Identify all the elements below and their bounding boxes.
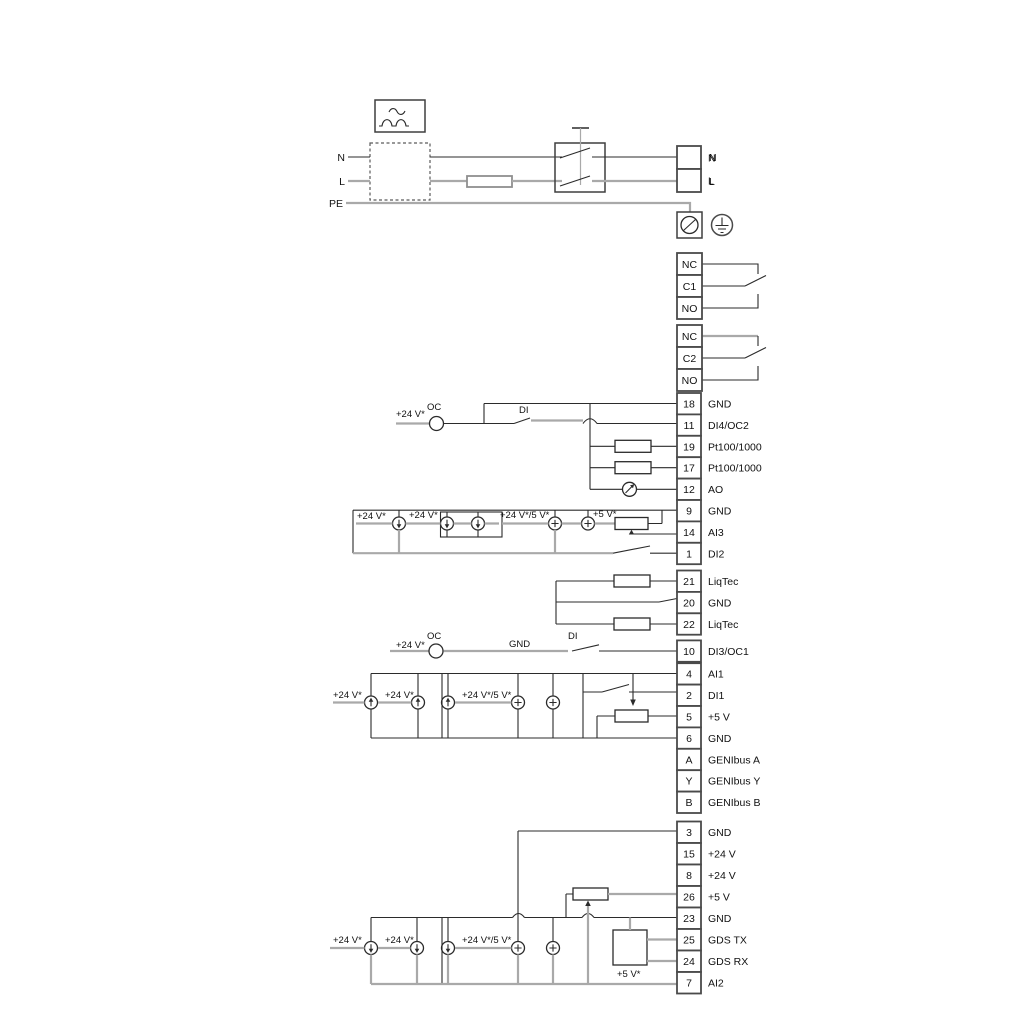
v24or5-label-ai3: +24 V*/5 V* [500, 510, 550, 521]
di-label-di4: DI [519, 405, 529, 416]
ai2-gds-circuit: +24 V* +24 V* +24 V*/5 V* +5 V* [330, 831, 677, 984]
ac-wave-icon [379, 109, 409, 126]
terminal-number: Y [685, 776, 692, 788]
terminal-label: AI1 [708, 669, 724, 681]
current-source-down-icon [393, 517, 406, 530]
terminal-label: +24 V [708, 849, 736, 861]
pe-terminal [677, 212, 702, 238]
v24-label-ai3-1: +24 V* [357, 511, 386, 522]
terminal-label: AO [708, 484, 723, 496]
v24or5-label-ai2: +24 V*/5 V* [462, 935, 512, 946]
current-source-up-icon [442, 696, 455, 709]
main-switch [555, 128, 605, 192]
relay2-wiring [702, 336, 766, 380]
current-source-down-icon [442, 942, 455, 955]
terminal-label: GND [708, 913, 732, 925]
terminal-block-bottom: 3GND15+24 V8+24 V26+5 V23GND25GDS TX24GD… [677, 822, 748, 994]
terminal-number: C1 [683, 281, 697, 293]
v24-label-ai2-2: +24 V* [385, 935, 414, 946]
voltage-source-icon [547, 696, 560, 709]
terminal-number: 23 [683, 913, 695, 925]
v24or5-label-ai1: +24 V*/5 V* [462, 690, 512, 701]
pot-wiper-arrow [630, 700, 636, 707]
terminal-block-io-b: 4AI12DI15+5 V6GNDAGENIbus AYGENIbus YBGE… [677, 663, 761, 813]
pt100-resistor-2 [615, 462, 651, 474]
di4-oc2-circuit: +24 V* OC DI [396, 402, 677, 496]
terminal-label: GENIbus B [708, 797, 761, 809]
terminal-number: 26 [683, 892, 695, 904]
ac-supply-box [375, 100, 425, 132]
current-source-down-icon [472, 517, 485, 530]
v5-label-ai3: +5 V* [593, 509, 617, 520]
di2-switch-blade [613, 546, 650, 553]
terminal-number: 9 [686, 506, 692, 518]
analog-output-meter-icon [623, 482, 637, 496]
oc-label-di4: OC [427, 402, 441, 413]
terminal-label: GENIbus Y [708, 776, 760, 788]
filter-box [370, 143, 430, 200]
terminal-label: GENIbus A [708, 754, 760, 766]
terminal-label: +24 V [708, 870, 736, 882]
v24-label-ai1-2: +24 V* [385, 690, 414, 701]
terminal-label: DI1 [708, 690, 725, 702]
terminal-label: GDS RX [708, 956, 748, 968]
terminal-number: 17 [683, 463, 695, 475]
voltage-source-icon [512, 942, 525, 955]
terminal-block-relay1: NCC1NO [677, 253, 702, 319]
v24-label-ai1-1: +24 V* [333, 690, 362, 701]
pt100-resistor-1 [615, 440, 651, 452]
terminal-number: 14 [683, 527, 695, 539]
gds-sensor-box [613, 930, 647, 965]
liqtec-circuit [556, 575, 677, 630]
terminal-label: DI3/OC1 [708, 646, 749, 658]
pot-wiper-arrow [585, 901, 591, 907]
terminal-number: 7 [686, 978, 692, 990]
current-source-down-icon [365, 942, 378, 955]
open-collector-icon [429, 644, 443, 658]
terminal-number: 4 [686, 669, 692, 681]
terminal-block-liqtec: 21LiqTec20GND22LiqTec [677, 571, 738, 635]
di1-switch-blade [602, 685, 629, 693]
terminal-number: NO [682, 303, 698, 315]
oc-label-di3: OC [427, 631, 441, 642]
terminal-number: 21 [683, 576, 695, 588]
potentiometer-ai3 [615, 518, 648, 530]
di-label-di3: DI [568, 631, 578, 642]
terminal-label: LiqTec [708, 619, 738, 631]
terminal-number: 15 [683, 849, 695, 861]
current-source-up-icon [365, 696, 378, 709]
fuse [467, 176, 512, 187]
terminal-number: 10 [683, 646, 695, 658]
terminal-number: 12 [683, 484, 695, 496]
line-n-label: N [337, 152, 345, 164]
relay1-wiring [702, 264, 766, 308]
v5-label-gds: +5 V* [617, 969, 641, 980]
liqtec-sensor-2 [614, 618, 650, 630]
open-collector-icon [430, 417, 444, 431]
terminal-label: GND [708, 827, 732, 839]
voltage-source-icon [549, 517, 562, 530]
current-source-down-icon [441, 517, 454, 530]
terminal-number: 5 [686, 712, 692, 724]
terminal-number: 19 [683, 441, 695, 453]
voltage-source-icon [582, 517, 595, 530]
potentiometer-ai1 [615, 710, 648, 722]
terminal-number: 3 [686, 827, 692, 839]
v24-label-ai2-1: +24 V* [333, 935, 362, 946]
terminal-number: C2 [683, 353, 697, 365]
terminal-label: +5 V [708, 712, 730, 724]
terminal-number: NC [682, 331, 698, 343]
terminal-label: DI2 [708, 548, 725, 560]
terminal-label: Pt100/1000 [708, 441, 762, 453]
voltage-source-icon [547, 942, 560, 955]
terminal-label: GND [708, 506, 732, 518]
pe-wire [346, 203, 690, 212]
switch-blade-n [560, 148, 590, 158]
terminal-number: B [685, 797, 692, 809]
terminal-label: GND [708, 597, 732, 609]
terminal-number: 25 [683, 935, 695, 947]
di4-switch-blade [514, 418, 530, 424]
gnd-wire-label: GND [509, 639, 530, 650]
relay1-blade [745, 276, 766, 287]
relay2-blade [745, 348, 766, 359]
terminal-label: GND [708, 733, 732, 745]
ai3-di2-circuit: +24 V* +24 V* +24 V*/5 V* +5 V* [353, 509, 677, 553]
terminal-number: 22 [683, 619, 695, 631]
terminal-l-out-label: L [709, 176, 715, 188]
terminal-number: 1 [686, 548, 692, 560]
current-source-down-icon [411, 942, 424, 955]
terminal-block-relay2: NCC2NO [677, 325, 702, 391]
liqtec-sensor-1 [614, 575, 650, 587]
terminal-label: Pt100/1000 [708, 463, 762, 475]
terminal-number: 6 [686, 733, 692, 745]
terminal-label: GDS TX [708, 935, 747, 947]
terminal-block-io-a: 18GND11DI4/OC219Pt100/100017Pt100/100012… [677, 393, 762, 564]
terminal-number: 11 [684, 420, 695, 432]
terminal-label: DI4/OC2 [708, 420, 749, 432]
terminal-number: 18 [683, 399, 695, 411]
ai1-di1-circuit: +24 V* +24 V* +24 V*/5 V* [333, 674, 677, 739]
potentiometer-ai2 [573, 888, 608, 900]
v24-label-di4: +24 V* [396, 409, 425, 420]
voltage-source-icon [512, 696, 525, 709]
di3-oc1-circuit: +24 V* OC GND DI [390, 631, 677, 658]
terminal-n-out-label: N [709, 152, 717, 164]
terminal-number: A [685, 754, 692, 766]
terminal-block-di3: 10DI3/OC1 [677, 640, 749, 661]
switch-blade-l [560, 176, 590, 186]
di3-switch-blade [572, 645, 599, 651]
v24-label-ai3-2: +24 V* [409, 510, 438, 521]
line-pe-label: PE [329, 198, 343, 210]
line-l-label: L [339, 176, 345, 188]
terminal-number: 20 [683, 597, 695, 609]
terminal-label: AI3 [708, 527, 724, 539]
terminal-number: 2 [686, 690, 692, 702]
terminal-cell [677, 169, 701, 192]
terminal-label: LiqTec [708, 576, 738, 588]
terminal-number: NO [682, 375, 698, 387]
terminal-label: AI2 [708, 978, 724, 990]
v24-label-di3: +24 V* [396, 640, 425, 651]
earth-symbol-icon [712, 215, 733, 236]
terminal-label: +5 V [708, 892, 730, 904]
terminal-number: NC [682, 259, 698, 271]
current-source-up-icon [412, 696, 425, 709]
power-section: N L PE [329, 100, 733, 238]
wiring-diagram: N L PE [0, 0, 1024, 1024]
terminal-number: 24 [683, 956, 695, 968]
terminal-number: 8 [686, 870, 692, 882]
terminal-label: GND [708, 399, 732, 411]
terminal-cell [677, 146, 701, 169]
